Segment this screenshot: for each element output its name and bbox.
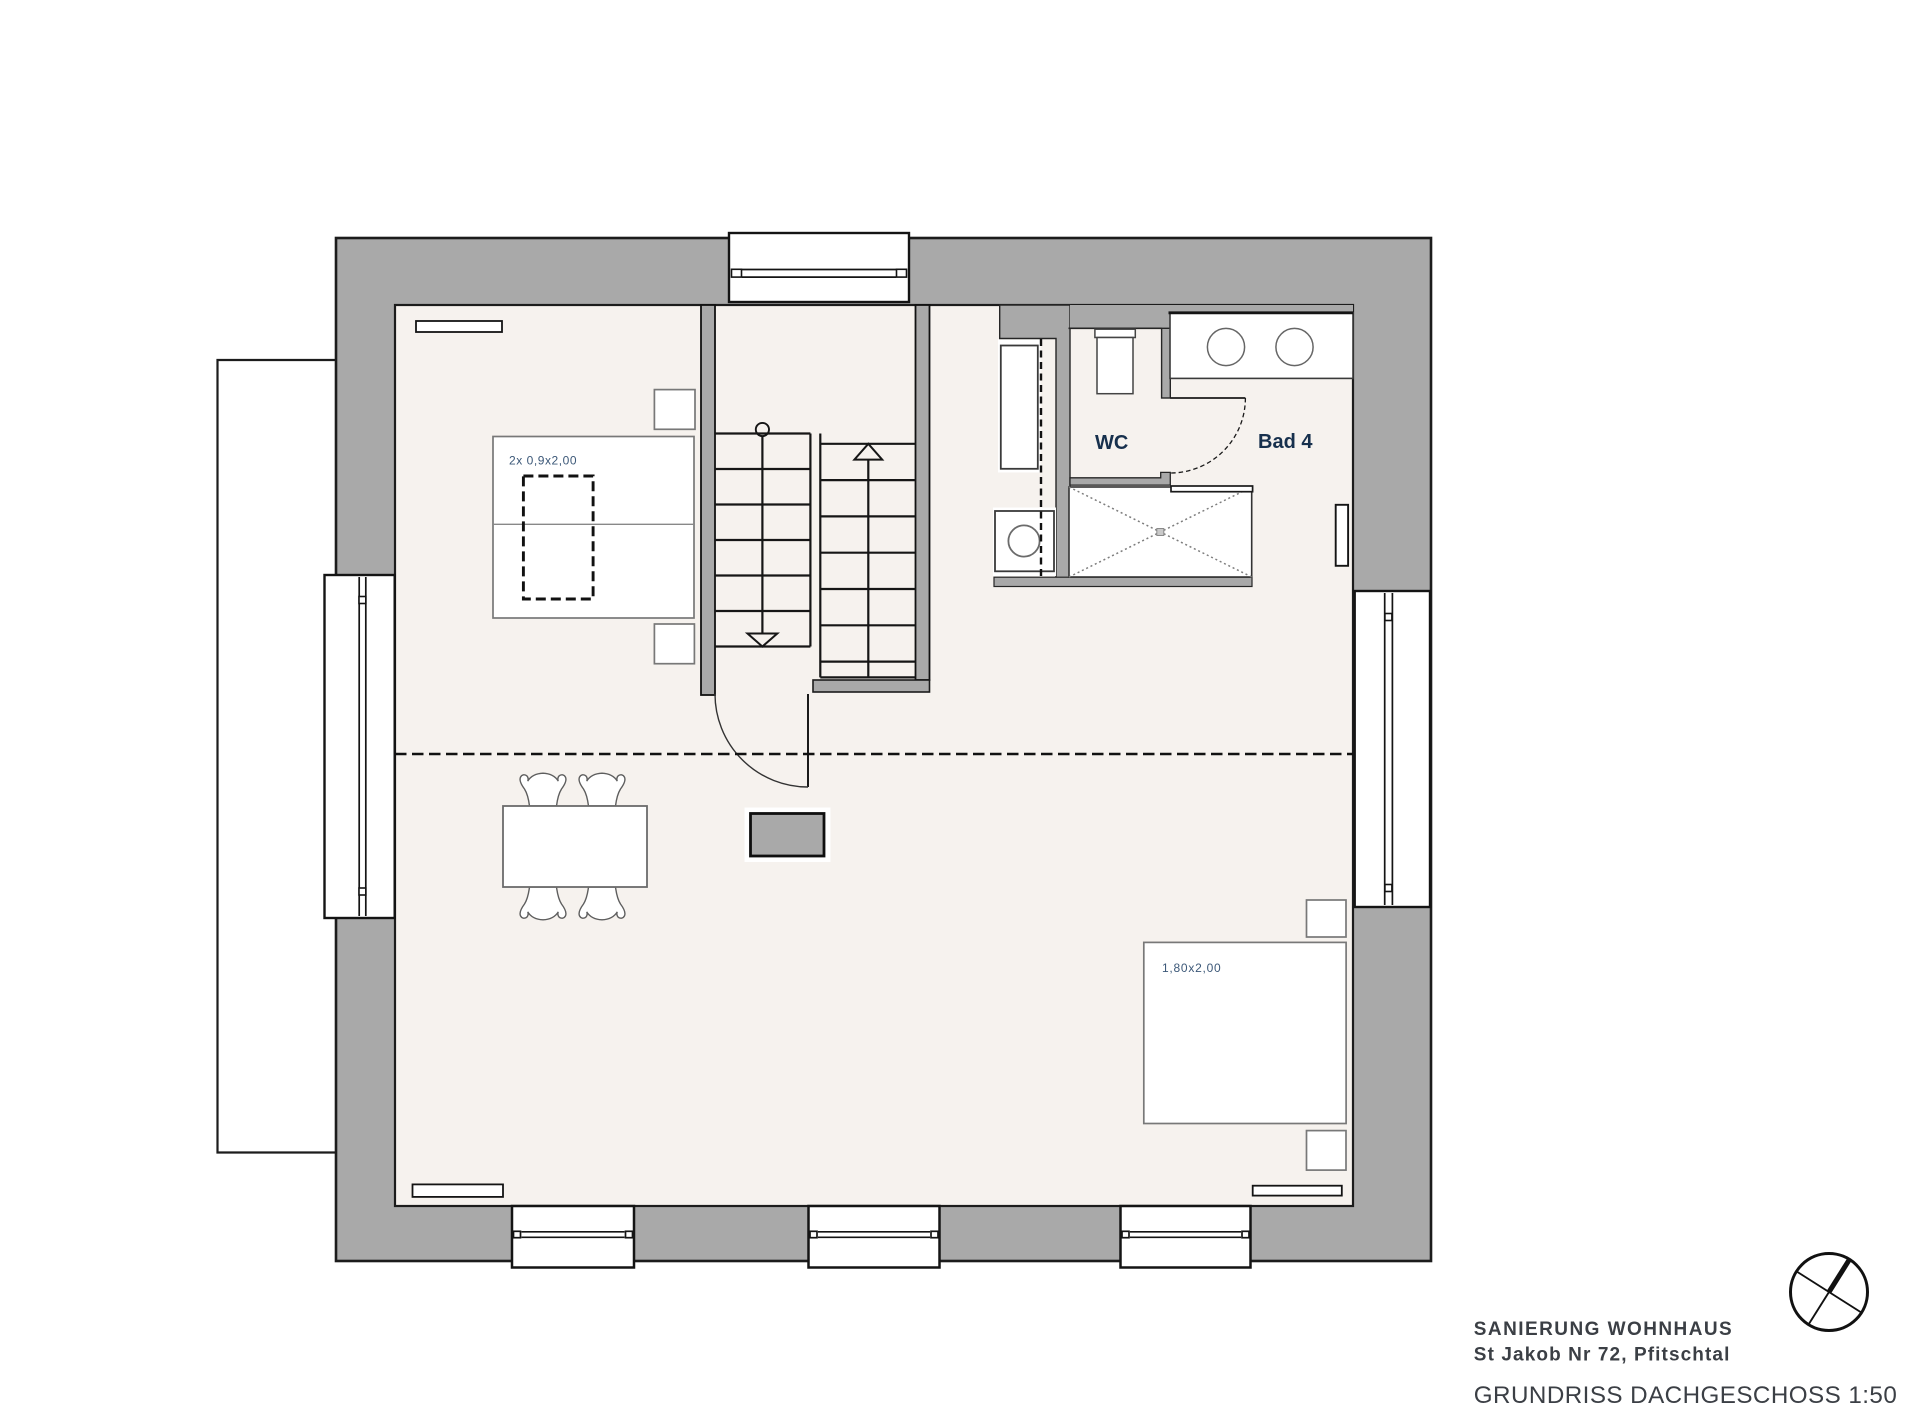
- svg-text:Bad 4: Bad 4: [1258, 431, 1313, 453]
- svg-text:St Jakob Nr 72, Pfitschtal: St Jakob Nr 72, Pfitschtal: [1474, 1345, 1731, 1366]
- svg-text:WC: WC: [1095, 432, 1128, 454]
- svg-text:2x 0,9x2,00: 2x 0,9x2,00: [509, 454, 577, 468]
- svg-text:SANIERUNG WOHNHAUS: SANIERUNG WOHNHAUS: [1474, 1319, 1733, 1340]
- svg-text:GRUNDRISS DACHGESCHOSS 1:50: GRUNDRISS DACHGESCHOSS 1:50: [1474, 1382, 1897, 1409]
- svg-text:1,80x2,00: 1,80x2,00: [1162, 961, 1221, 975]
